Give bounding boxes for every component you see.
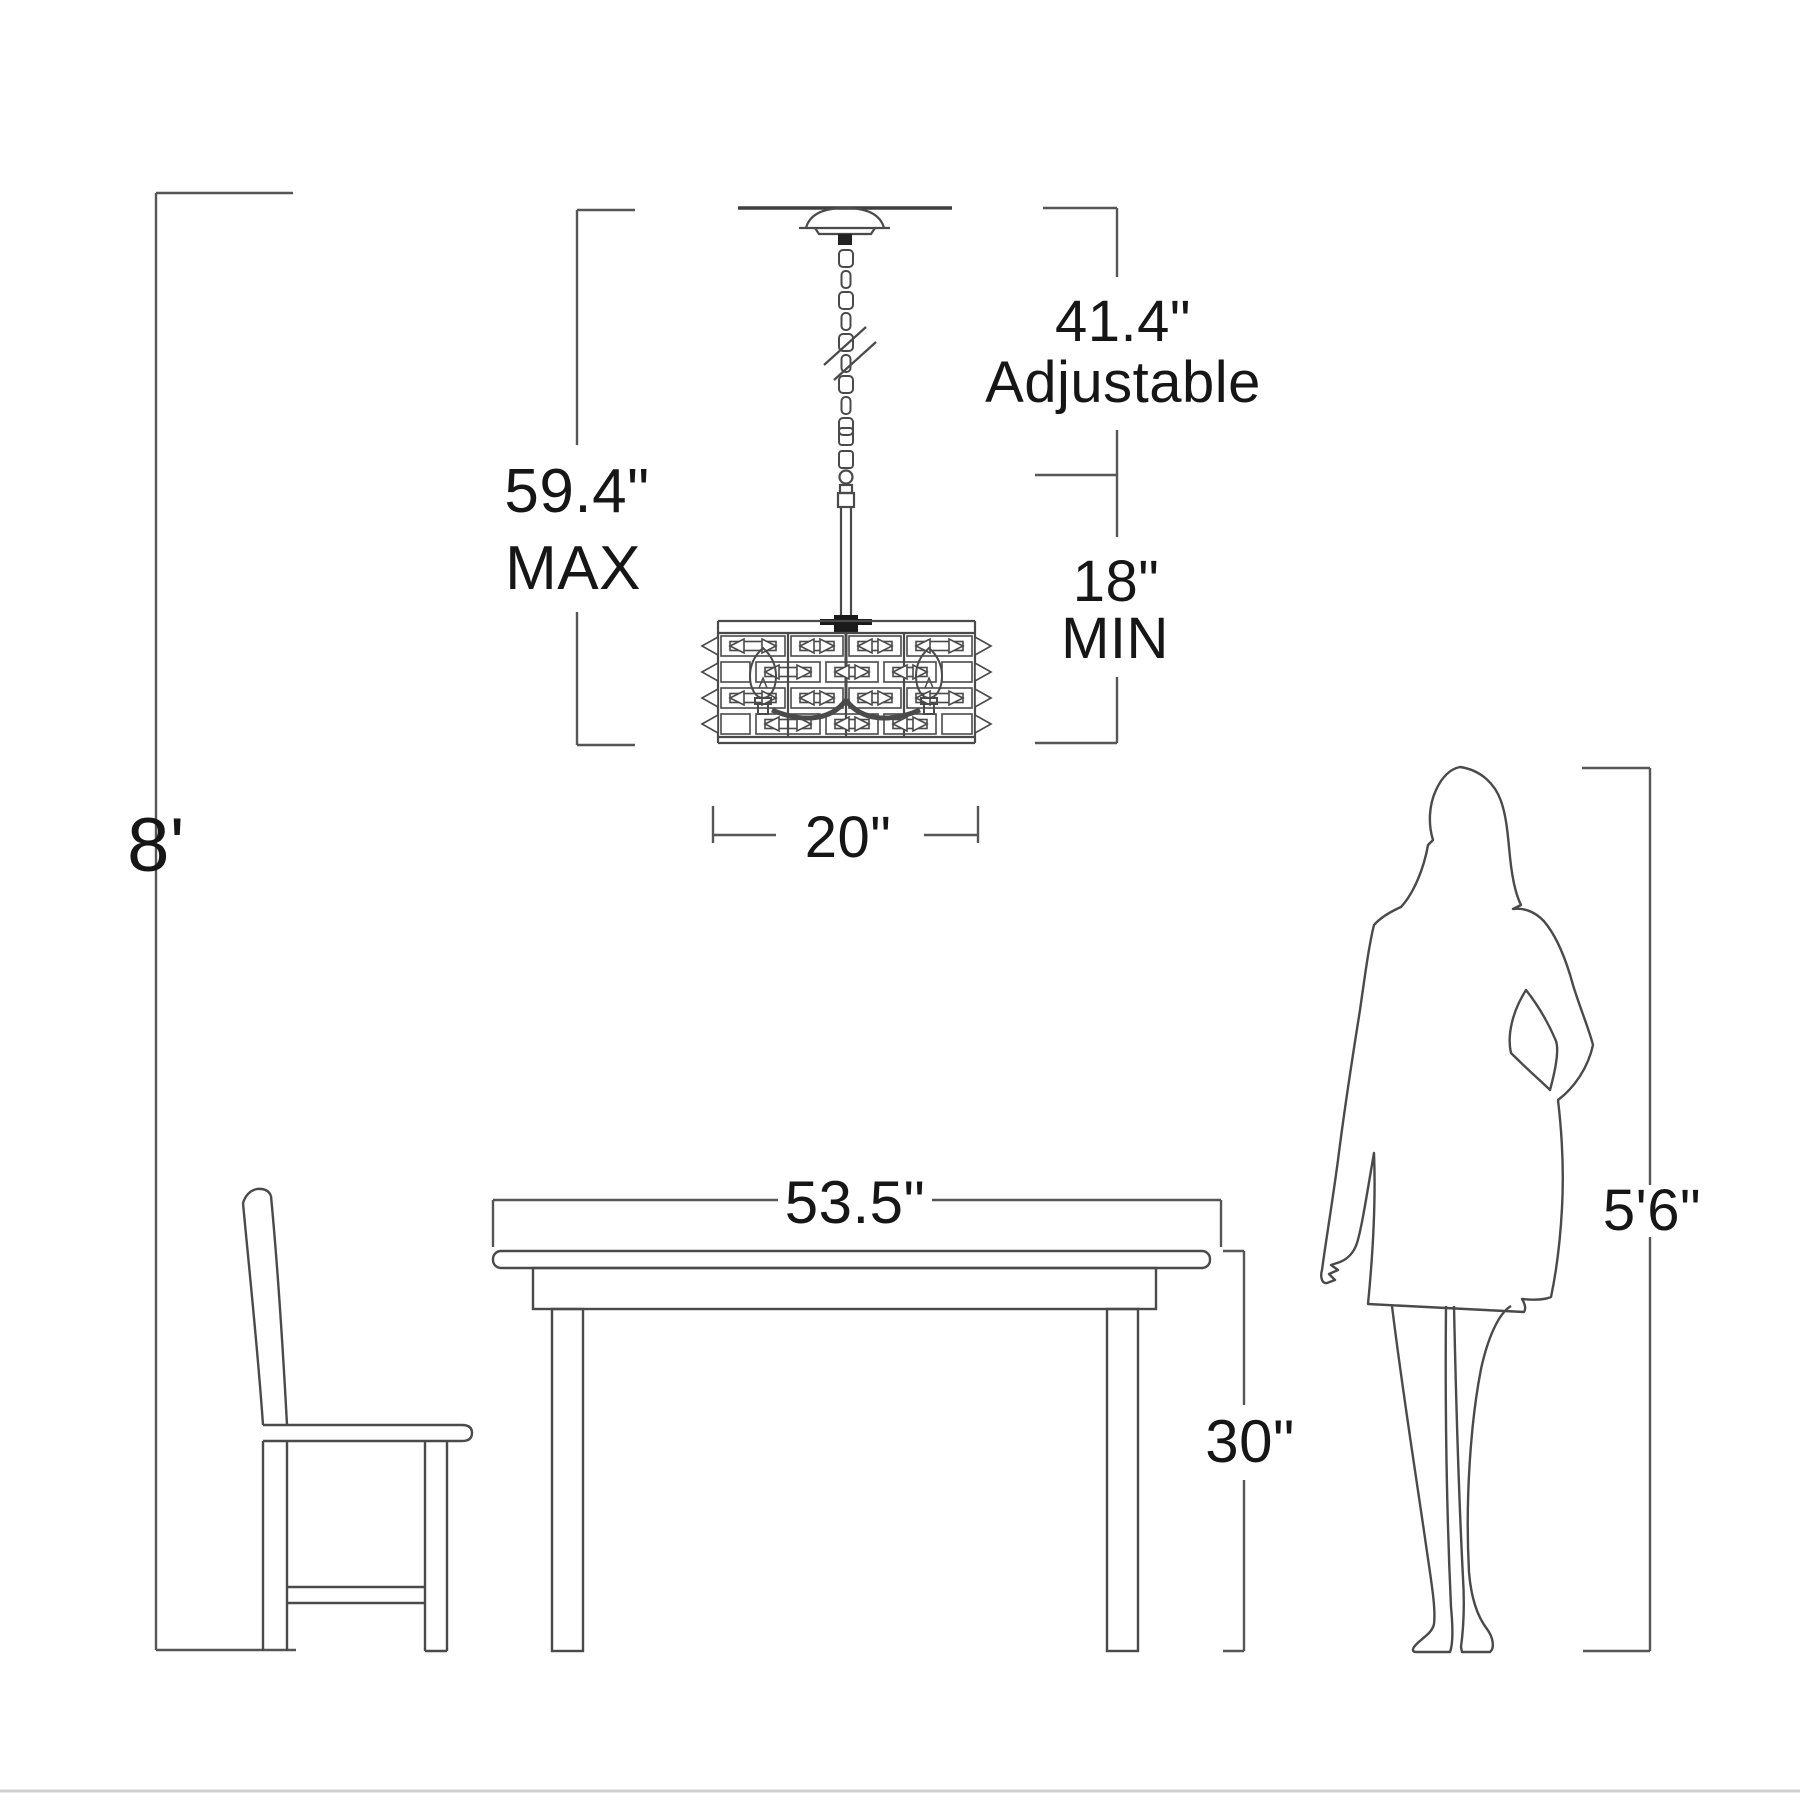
dining-table xyxy=(493,1251,1210,1651)
max-value-label: 59.4" xyxy=(504,461,649,523)
hanging-chain xyxy=(839,250,853,468)
dimension-drawing: 8' 59.4" MAX 41.4" Adjustable 18" MIN 20… xyxy=(0,0,1800,1800)
table-height-label: 30" xyxy=(1205,1412,1295,1472)
dimension-ceiling-height xyxy=(156,193,296,1650)
woman-silhouette xyxy=(1321,767,1593,1652)
line-art xyxy=(0,0,1800,1800)
person-height-label: 5'6" xyxy=(1603,1182,1701,1240)
min-word-label: MIN xyxy=(1061,610,1169,668)
table-width-label: 53.5" xyxy=(785,1173,926,1233)
chair xyxy=(243,1189,472,1651)
ceiling-height-label: 8' xyxy=(127,808,185,884)
adjustable-value-label: 41.4" xyxy=(1055,293,1191,351)
min-value-label: 18" xyxy=(1073,553,1160,611)
adjustable-word-label: Adjustable xyxy=(985,354,1261,412)
fixture-width-label: 20" xyxy=(805,809,892,867)
chandelier-canopy xyxy=(799,208,890,245)
max-word-label: MAX xyxy=(505,538,641,600)
